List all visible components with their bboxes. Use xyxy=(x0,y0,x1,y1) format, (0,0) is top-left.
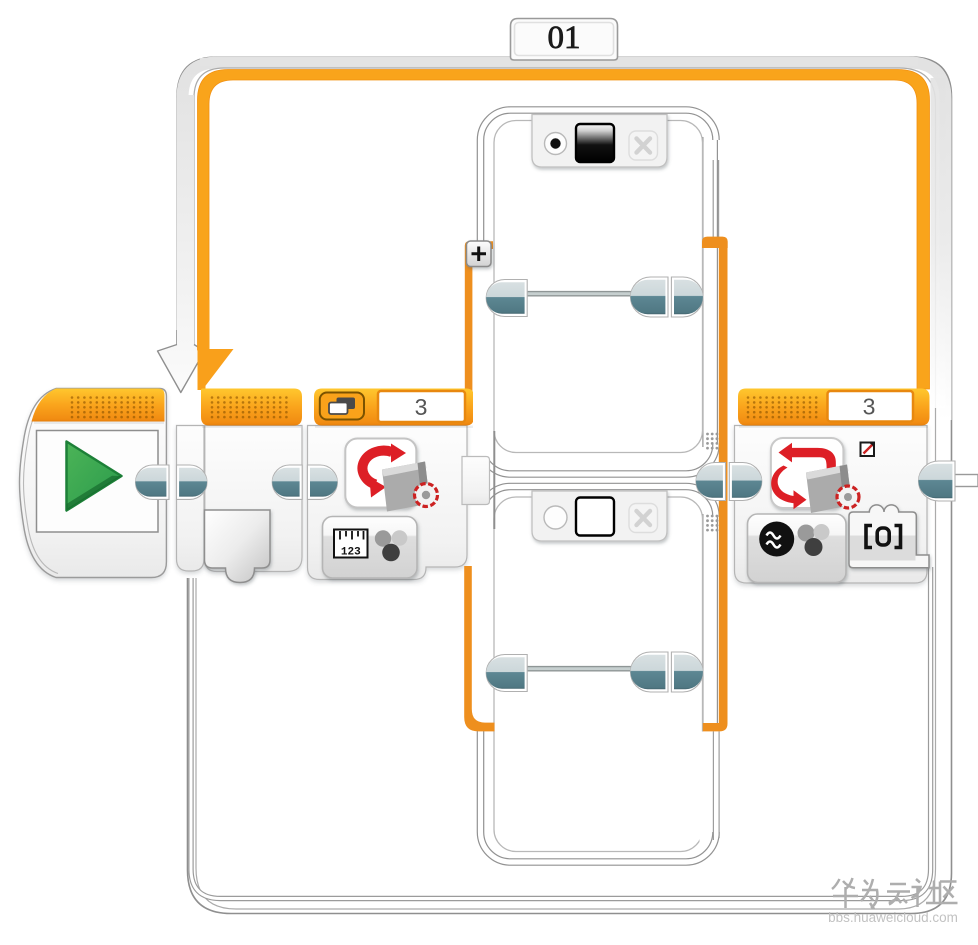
svg-text:3: 3 xyxy=(863,394,876,420)
svg-text:01: 01 xyxy=(548,20,581,56)
svg-text:3: 3 xyxy=(415,394,428,420)
svg-text:bbs.huaweicloud.com: bbs.huaweicloud.com xyxy=(828,910,958,925)
svg-text:123: 123 xyxy=(341,547,361,559)
